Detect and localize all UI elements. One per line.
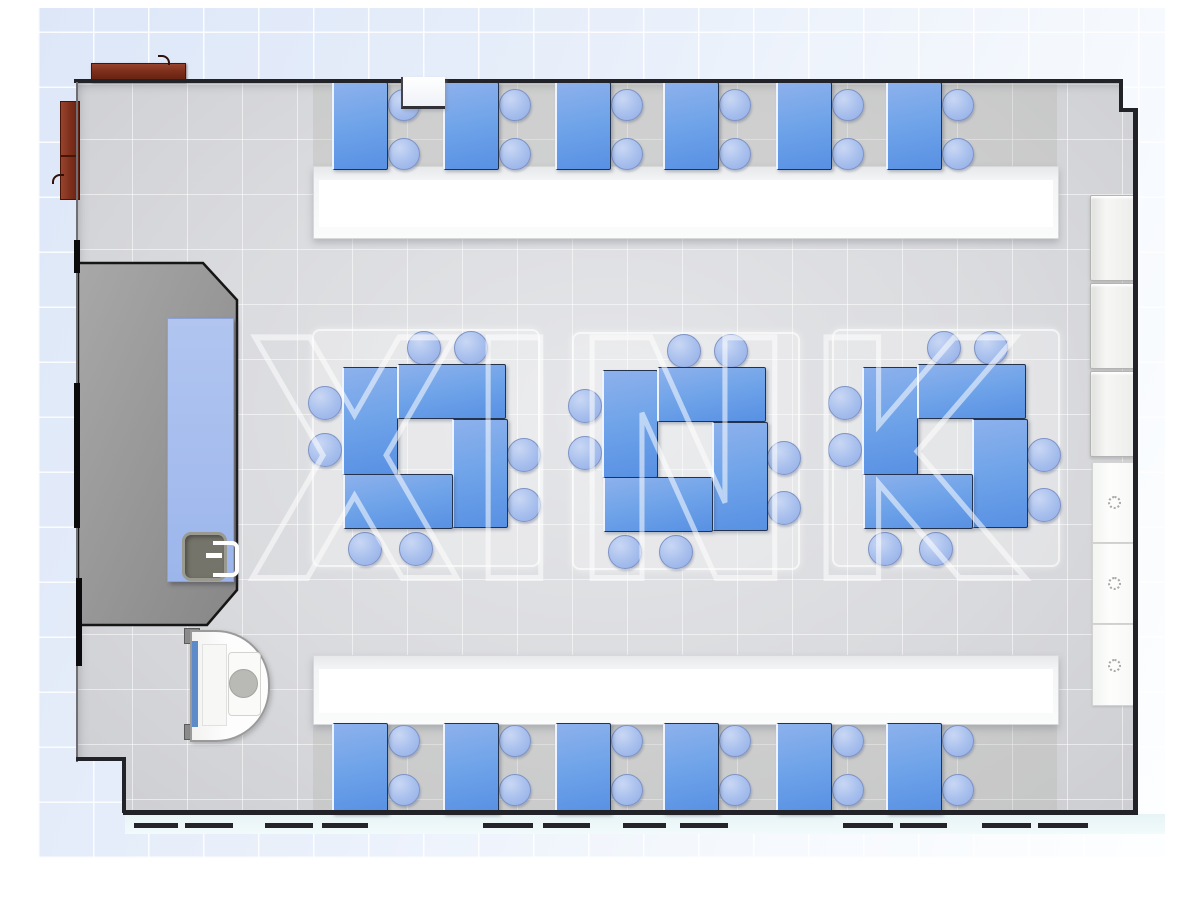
storage-cabinet-lower xyxy=(1092,624,1137,706)
cluster-chair-1 xyxy=(308,433,342,467)
cluster-chair-1 xyxy=(348,532,382,566)
student-chair-bottom-row xyxy=(499,725,531,757)
student-chair-top-row xyxy=(832,138,864,170)
cluster-chair-2 xyxy=(714,334,748,368)
cluster-chair-1 xyxy=(507,488,541,522)
student-desk-bottom-row xyxy=(663,723,719,814)
student-chair-bottom-row xyxy=(832,774,864,806)
cluster-chair-2 xyxy=(767,441,801,475)
window-dash xyxy=(265,823,313,828)
student-chair-top-row xyxy=(611,138,643,170)
cluster-chair-2 xyxy=(667,334,701,368)
wall-left-step-vertical xyxy=(122,757,126,813)
student-chair-bottom-row xyxy=(719,725,751,757)
student-chair-top-row xyxy=(499,138,531,170)
cluster-chair-3 xyxy=(919,532,953,566)
cluster-desk-1 xyxy=(343,474,453,529)
window-dash xyxy=(1038,823,1088,828)
student-chair-top-row xyxy=(719,89,751,121)
cluster-chair-3 xyxy=(1027,488,1061,522)
student-desk-bottom-row xyxy=(776,723,832,814)
student-chair-top-row xyxy=(942,138,974,170)
window-dash xyxy=(900,823,947,828)
cluster-chair-1 xyxy=(399,532,433,566)
wall-left-segment-3 xyxy=(76,578,82,666)
student-desk-bottom-row xyxy=(332,723,388,814)
wall-left-step-horizontal xyxy=(76,757,126,761)
wall-step-vertical xyxy=(1119,79,1123,111)
cabinet-handle-icon xyxy=(52,174,64,184)
window-dash xyxy=(543,823,590,828)
cabinet-knob-icon xyxy=(1108,659,1121,672)
student-chair-top-row xyxy=(388,138,420,170)
student-chair-top-row xyxy=(499,89,531,121)
wall-pillar xyxy=(401,77,445,109)
window-dash xyxy=(623,823,666,828)
cluster-chair-3 xyxy=(927,331,961,365)
student-chair-bottom-row xyxy=(719,774,751,806)
cluster-chair-1 xyxy=(407,331,441,365)
student-desk-top-row xyxy=(555,82,611,170)
storage-cabinet-lower xyxy=(1092,462,1137,543)
wall-top xyxy=(74,79,1123,83)
student-desk-top-row xyxy=(663,82,719,170)
student-desk-bottom-row xyxy=(443,723,499,814)
cluster-desk-3 xyxy=(917,364,1026,419)
wall-left-segment-2 xyxy=(74,383,80,528)
window-dash xyxy=(843,823,893,828)
cluster-chair-1 xyxy=(308,386,342,420)
student-chair-top-row xyxy=(611,89,643,121)
cluster-desk-1 xyxy=(342,367,398,475)
student-chair-bottom-row xyxy=(388,725,420,757)
student-chair-bottom-row xyxy=(499,774,531,806)
wall-bottom xyxy=(123,810,1138,815)
student-chair-bottom-row xyxy=(611,725,643,757)
student-chair-bottom-row xyxy=(942,774,974,806)
wall-left-segment-1 xyxy=(74,240,80,273)
cluster-chair-2 xyxy=(608,535,642,569)
student-chair-bottom-row xyxy=(832,725,864,757)
cluster-chair-3 xyxy=(828,433,862,467)
cluster-desk-1 xyxy=(452,419,508,528)
student-chair-top-row xyxy=(719,138,751,170)
faucet-icon xyxy=(213,541,239,577)
storage-cabinet-upper xyxy=(1090,283,1135,369)
student-chair-bottom-row xyxy=(611,774,643,806)
counter-top xyxy=(313,166,1059,239)
cluster-desk-3 xyxy=(972,419,1028,528)
student-desk-top-row xyxy=(443,82,499,170)
counter-bottom xyxy=(313,655,1059,725)
student-chair-top-row xyxy=(942,89,974,121)
cabinet-seam xyxy=(61,155,77,157)
cluster-desk-3 xyxy=(863,474,973,529)
cluster-chair-2 xyxy=(767,491,801,525)
storage-cabinet-upper xyxy=(1090,371,1135,457)
cluster-chair-2 xyxy=(659,535,693,569)
cluster-chair-1 xyxy=(454,331,488,365)
cluster-chair-3 xyxy=(1027,438,1061,472)
storage-cabinet-lower xyxy=(1092,543,1137,624)
student-desk-top-row xyxy=(886,82,942,170)
floor-plan-canvas: XINK xyxy=(0,0,1200,900)
cabinet-knob-icon xyxy=(1108,496,1121,509)
student-desk-bottom-row xyxy=(555,723,611,814)
window-dash xyxy=(483,823,533,828)
student-chair-top-row xyxy=(832,89,864,121)
storage-cabinet-upper xyxy=(1090,195,1135,281)
window-dash xyxy=(982,823,1031,828)
window-dash xyxy=(185,823,233,828)
cluster-chair-1 xyxy=(507,438,541,472)
window-dash xyxy=(680,823,728,828)
student-chair-bottom-row xyxy=(942,725,974,757)
student-desk-top-row xyxy=(776,82,832,170)
cluster-desk-2 xyxy=(657,367,766,422)
faucet-bar-icon xyxy=(206,553,222,558)
window-dash xyxy=(134,823,178,828)
cluster-chair-2 xyxy=(568,389,602,423)
window-dash xyxy=(322,823,368,828)
cluster-chair-3 xyxy=(868,532,902,566)
sink-station-blue-edge xyxy=(192,641,198,727)
wall-right xyxy=(1133,108,1138,815)
cluster-chair-3 xyxy=(974,331,1008,365)
cluster-desk-2 xyxy=(602,370,658,478)
student-desk-top-row xyxy=(332,82,388,170)
cluster-desk-2 xyxy=(603,477,713,532)
cluster-desk-3 xyxy=(862,367,918,475)
cluster-desk-1 xyxy=(397,364,506,419)
student-desk-bottom-row xyxy=(886,723,942,814)
cluster-desk-2 xyxy=(712,422,768,531)
sink-station-drain xyxy=(229,669,258,698)
cabinet-knob-icon xyxy=(1108,577,1121,590)
sink-station-panel xyxy=(202,644,227,726)
student-chair-bottom-row xyxy=(388,774,420,806)
cluster-chair-3 xyxy=(828,386,862,420)
cluster-chair-2 xyxy=(568,436,602,470)
